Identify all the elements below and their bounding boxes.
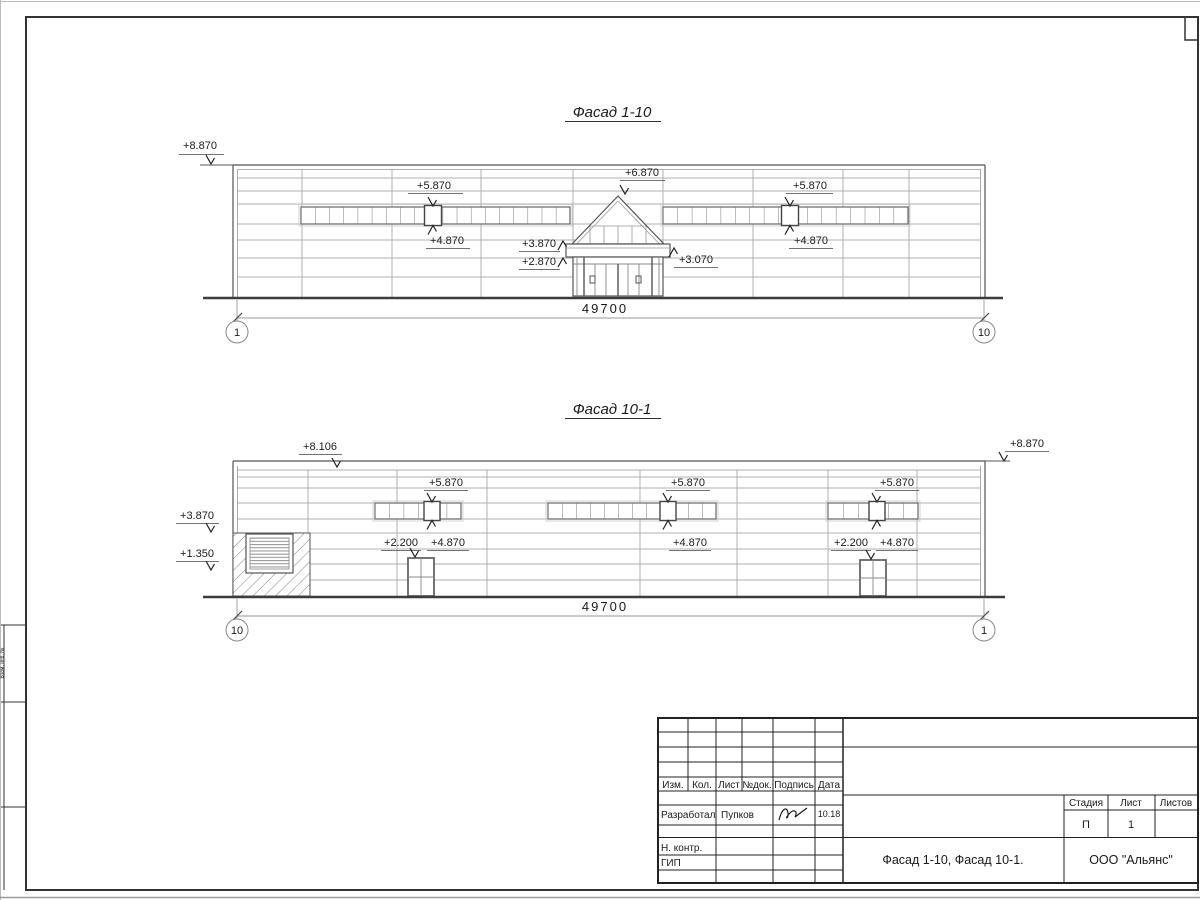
th-kol: Кол. xyxy=(692,780,712,791)
facade-bottom-window-band-a xyxy=(373,501,463,521)
level-canopy-3070: +3.070 xyxy=(679,254,713,266)
title-block: Изм. Кол. Лист №док. Подпись Дата Разраб… xyxy=(658,718,1198,883)
facade-bottom-window-band-b xyxy=(546,501,718,521)
facade-10-1: Фасад 10-1 xyxy=(176,401,1049,641)
grid-axis-1: 1 xyxy=(234,327,240,339)
sheets-label: Листов xyxy=(1160,798,1193,809)
frame-corner-box xyxy=(1185,17,1198,40)
sheet-label: Лист xyxy=(1120,798,1142,809)
developed-label: Разработал xyxy=(661,809,716,821)
level-left-3870: +3.870 xyxy=(180,510,214,522)
grid-axis-10-b: 10 xyxy=(231,625,243,637)
level-parapet-8106: +8.106 xyxy=(303,441,337,453)
level-band-c-5870: +5.870 xyxy=(880,477,914,489)
doc-title: Фасад 1-10, Фасад 10-1. xyxy=(882,853,1023,867)
level-roof-8870: +8.870 xyxy=(1010,438,1044,450)
level-band-left-5870: +5.870 xyxy=(417,180,451,192)
dimension-49700-top: 49700 xyxy=(582,301,628,316)
entrance-canopy xyxy=(566,244,670,257)
level-left-1350: +1.350 xyxy=(180,548,214,560)
facade-top-title: Фасад 1-10 xyxy=(573,104,652,121)
level-band-b-4870: +4.870 xyxy=(673,537,707,549)
level-gable-6870: +6.870 xyxy=(625,167,659,179)
frame-side-label: Взам. инв. № xyxy=(0,648,6,679)
date-value: 10.18 xyxy=(818,809,841,819)
sheet-value: 1 xyxy=(1128,819,1134,831)
th-podpis: Подпись xyxy=(774,780,814,791)
level-band-b-5870: +5.870 xyxy=(671,477,705,489)
ncontr-label: Н. контр. xyxy=(661,843,702,854)
grid-axis-10: 10 xyxy=(978,327,990,339)
level-door-left-2200: +2.200 xyxy=(384,537,418,549)
th-list: Лист xyxy=(718,780,740,791)
facade-top-dimension: 49700 1 10 xyxy=(226,300,995,343)
level-door-right-2200: +2.200 xyxy=(834,537,868,549)
facade-1-10: Фасад 1-10 xyxy=(179,104,1003,343)
page: { "sheet": { "dimension": "49700" }, "le… xyxy=(0,0,1200,900)
level-band-c-4870: +4.870 xyxy=(880,537,914,549)
level-band-a-4870: +4.870 xyxy=(431,537,465,549)
facade-bottom-title: Фасад 10-1 xyxy=(573,401,652,418)
level-canopy-2870: +2.870 xyxy=(522,256,556,268)
louver-grille xyxy=(250,538,289,569)
th-ndok: №док. xyxy=(742,780,771,791)
company-name: ООО "Альянс" xyxy=(1089,853,1173,867)
facade-top-window-band-right xyxy=(661,205,910,227)
level-band-right-5870: +5.870 xyxy=(793,180,827,192)
stage-label: Стадия xyxy=(1069,798,1103,809)
facade-top-window-band-left xyxy=(299,205,572,227)
level-band-a-5870: +5.870 xyxy=(429,477,463,489)
gip-label: ГИП xyxy=(661,858,681,869)
facade-bottom-dimension: 49700 10 1 xyxy=(226,599,995,641)
facade-bottom-window-band-c xyxy=(826,501,920,521)
entrance xyxy=(566,196,670,296)
th-data: Дата xyxy=(818,780,841,791)
drawing-sheet: Взам. инв. № Фасад 1-10 xyxy=(0,0,1200,900)
door-right xyxy=(860,560,886,596)
dimension-49700-bottom: 49700 xyxy=(582,599,628,614)
level-top-8870: +8.870 xyxy=(183,140,217,152)
developed-name: Пупков xyxy=(721,810,754,821)
door-left xyxy=(408,558,434,596)
level-band-right-4870: +4.870 xyxy=(794,235,828,247)
th-izm: Изм. xyxy=(662,780,683,791)
stage-value: П xyxy=(1082,819,1090,831)
louver-block xyxy=(233,533,310,596)
grid-axis-1-b: 1 xyxy=(981,625,987,637)
level-canopy-3870: +3.870 xyxy=(522,238,556,250)
level-band-left-4870: +4.870 xyxy=(430,235,464,247)
